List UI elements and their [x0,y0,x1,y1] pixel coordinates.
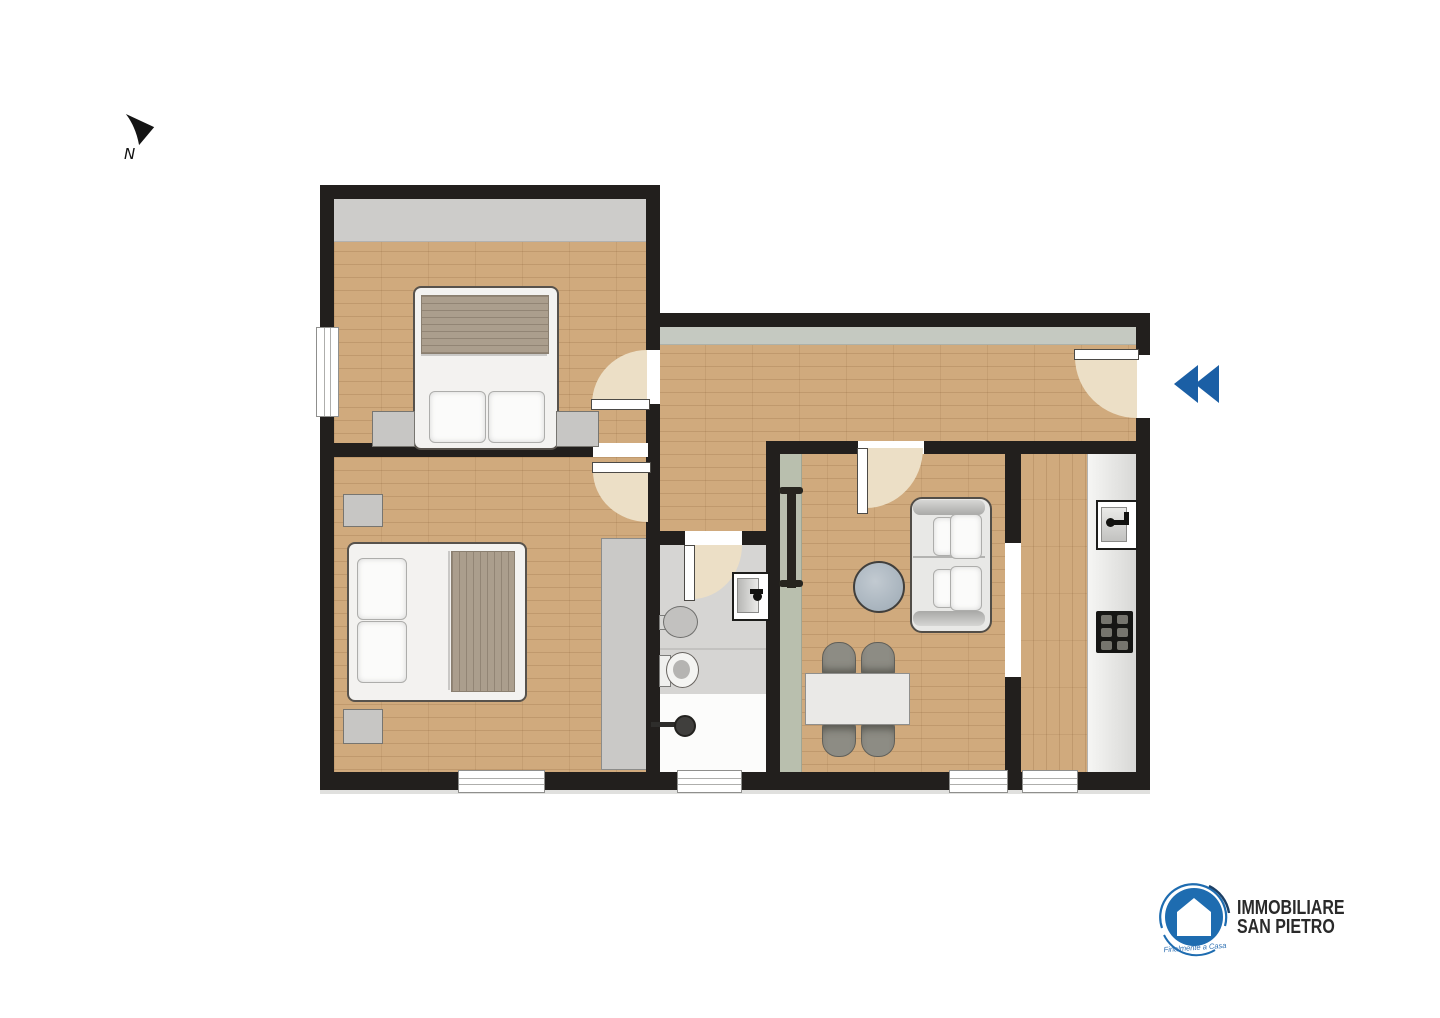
kitchen-window [1022,770,1078,793]
entrance-opening [1136,355,1150,418]
wall-bathroom-left [646,457,660,776]
coffee-table [853,561,905,613]
dining-chair-1 [822,642,856,677]
bedroom2-nightstand-bottom [343,709,383,744]
wall-left [320,185,334,790]
bathroom-window-pane-line [678,778,741,779]
bedroom1-door-leaf [591,399,650,410]
stove-burner [1117,615,1128,624]
sofa-armrest-top [913,500,985,515]
logo-title-line1: IMMOBILIARE [1237,899,1345,918]
bedroom1-door-opening [646,350,660,404]
bed2-blanket [451,551,515,692]
bathroom-window-pane-line [678,784,741,785]
bathroom-zone-divider [660,648,766,650]
bedroom2-door-leaf [592,462,651,473]
bed1-blanket [421,295,549,354]
floor-plan [0,0,1440,1018]
living-window-pane-line [950,784,1007,785]
dining-table [805,673,910,725]
hallway-extension-floor [658,441,766,533]
stove-burner [1101,615,1112,624]
bedroom2-wardrobe [601,538,648,770]
chevron-left-2 [1195,365,1219,403]
north-label: N [124,145,169,163]
kitchen-passage-opening [1005,543,1021,677]
stove-burner [1101,641,1112,650]
toilet-bowl-inner [673,660,690,679]
kitchen-window-pane-line [1023,784,1077,785]
dining-chair-3 [822,722,856,757]
sofa-pillow-4 [950,566,982,611]
bathroom-door-leaf [684,545,695,601]
north-arrow-shape [126,114,154,145]
sofa-pillow-2 [950,514,982,559]
bedroom1-closet-band [334,199,646,242]
bed2-pillow-top [357,558,407,620]
bedroom2-window-pane-line [459,784,544,785]
dining-chair-2 [861,642,895,677]
bed2-sheet-line [448,551,450,690]
bathroom-faucet-knob [753,592,762,601]
kitchen-stove [1096,611,1133,653]
radiator-cap-top [779,487,803,494]
chevron-left-1 [1174,365,1198,403]
stove-burner [1117,628,1128,637]
shower-head [674,715,696,737]
stove-burner [1101,628,1112,637]
bedroom2-window-pane-line [459,778,544,779]
radiator-cap-bottom [779,580,803,587]
bidet [663,606,698,638]
hallway-band [658,327,1136,345]
logo-title-line2: SAN PIETRO [1237,918,1345,937]
bedroom1-nightstand-right [556,411,599,447]
radiator-bar [787,489,796,588]
stove-burner [1117,641,1128,650]
bedroom2-door-opening [593,443,648,457]
bedroom2-nightstand-top [343,494,383,527]
living-door-leaf [857,448,868,514]
bed1-pillow-right [488,391,545,443]
entrance-door-leaf [1074,349,1139,360]
logo-title: IMMOBILIARE SAN PIETRO [1237,899,1345,936]
living-window-pane-line [950,778,1007,779]
kitchen-window-pane-line [1023,778,1077,779]
wall-bedroom1-top [320,185,660,199]
bedroom1-window-pane-line [324,328,325,416]
shower-floor [660,694,766,776]
bed1-pillow-left [429,391,486,443]
bedroom1-nightstand-left [372,411,415,447]
wall-hallway-top [646,313,1150,327]
bed2-pillow-bottom [357,621,407,683]
bedroom1-window [316,327,339,417]
bathroom-door-opening [685,531,742,545]
living-window [949,770,1008,793]
compass: N [123,112,169,163]
bathroom-window [677,770,742,793]
kitchen-faucet-tip [1124,512,1129,525]
sofa-armrest-bottom [913,611,985,626]
wall-living-kitchen-top [766,441,1136,454]
agency-logo: Finalmente a Casa IMMOBILIARE SAN PIETRO [1152,876,1432,986]
bedroom2-window [458,770,545,793]
entrance-chevron-icon [1172,364,1220,404]
dining-chair-4 [861,722,895,757]
north-arrow-icon [123,112,157,148]
floor-plan-page: N Finalmente a Casa IMMOBILIARE SAN PIET… [0,0,1440,1018]
bed1-sheet-line [421,354,547,356]
bedroom1-window-pane-line [330,328,331,416]
